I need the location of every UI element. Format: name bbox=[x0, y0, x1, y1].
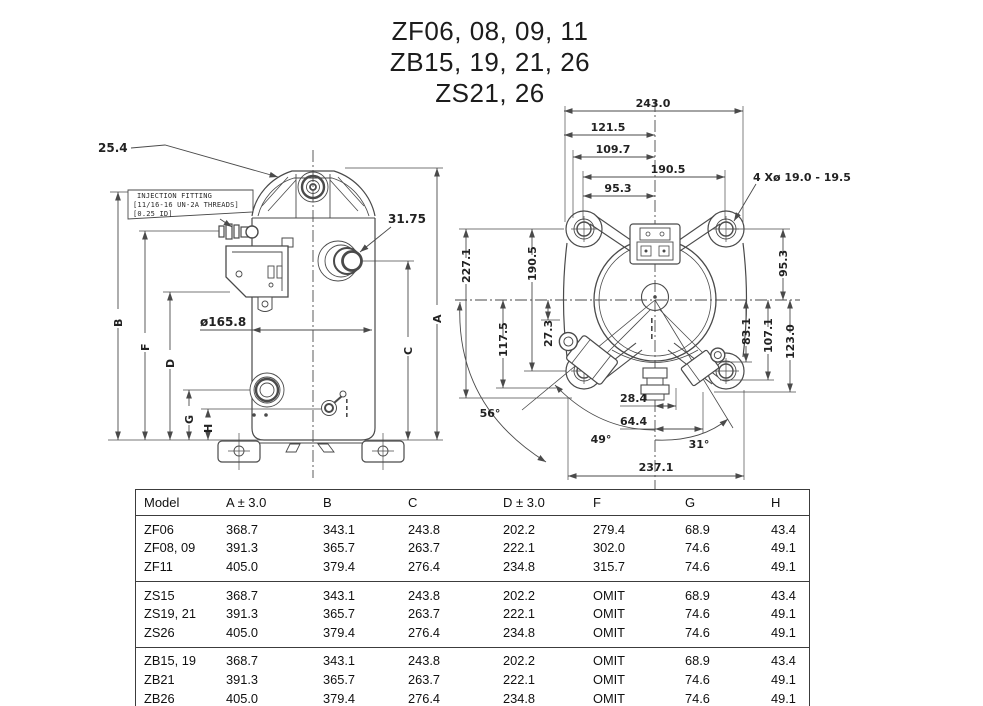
value-cell: 74.6 bbox=[683, 606, 769, 621]
dim-a: A bbox=[431, 168, 444, 440]
value-cell: 49.1 bbox=[769, 559, 805, 574]
table-row: ZS19, 21391.3365.7263.7222.1OMIT74.649.1 bbox=[136, 604, 809, 623]
dim-64-4: 64.4 bbox=[620, 415, 703, 429]
model-cell: ZB21 bbox=[136, 672, 224, 687]
value-cell: 234.8 bbox=[501, 559, 591, 574]
dim-109-7-label: 109.7 bbox=[596, 143, 631, 156]
value-cell: 43.4 bbox=[769, 588, 805, 603]
table-header-cell: G bbox=[683, 495, 769, 510]
value-cell: 405.0 bbox=[224, 559, 321, 574]
angle-56-label: 56° bbox=[480, 407, 501, 420]
dim-190-5-v-label: 190.5 bbox=[526, 246, 539, 281]
value-cell: 368.7 bbox=[224, 522, 321, 537]
table-header-cell: F bbox=[591, 495, 683, 510]
dim-243: 243.0 bbox=[564, 97, 743, 111]
value-cell: OMIT bbox=[591, 691, 683, 706]
value-cell: 368.7 bbox=[224, 653, 321, 668]
dim-g-label: G bbox=[183, 415, 196, 424]
table-row: ZB26405.0379.4276.4234.8OMIT74.649.1 bbox=[136, 689, 809, 706]
dim-d: D bbox=[164, 292, 177, 440]
dim-237-1-label: 237.1 bbox=[639, 461, 674, 474]
dim-107-1-label: 107.1 bbox=[762, 318, 775, 353]
dim-123-0-label: 123.0 bbox=[784, 324, 797, 359]
suction-fitting bbox=[318, 241, 362, 281]
table-group: ZS15368.7343.1243.8202.2OMIT68.943.4ZS19… bbox=[136, 582, 809, 648]
table-header-cell: H bbox=[769, 495, 805, 510]
value-cell: 222.1 bbox=[501, 606, 591, 621]
dim-f: F bbox=[139, 231, 152, 440]
value-cell: 391.3 bbox=[224, 606, 321, 621]
service-valve bbox=[322, 391, 348, 417]
dim-237-1: 237.1 bbox=[568, 461, 744, 476]
dim-b-label: B bbox=[112, 319, 125, 327]
table-row: ZF06368.7343.1243.8202.2279.468.943.4 bbox=[136, 520, 809, 539]
dim-95-3-h: 95.3 bbox=[583, 182, 655, 196]
value-cell: 68.9 bbox=[683, 588, 769, 603]
dim-25-4: 25.4 bbox=[98, 141, 278, 177]
table-row: ZS15368.7343.1243.8202.2OMIT68.943.4 bbox=[136, 586, 809, 605]
injection-fitting bbox=[219, 224, 258, 239]
dim-diameter: ø165.8 bbox=[200, 315, 372, 330]
value-cell: 222.1 bbox=[501, 672, 591, 687]
model-cell: ZS19, 21 bbox=[136, 606, 224, 621]
table-header-cell: A ± 3.0 bbox=[224, 495, 321, 510]
injection-note-line3: [0.25 ID] bbox=[133, 210, 173, 218]
table-row: ZB15, 19368.7343.1243.8202.2OMIT68.943.4 bbox=[136, 652, 809, 671]
table-header-row: ModelA ± 3.0BCD ± 3.0FGH bbox=[136, 490, 809, 516]
value-cell: 49.1 bbox=[769, 672, 805, 687]
dim-d-label: D bbox=[164, 359, 177, 368]
model-cell: ZS15 bbox=[136, 588, 224, 603]
value-cell: 243.8 bbox=[406, 653, 501, 668]
value-cell: 68.9 bbox=[683, 653, 769, 668]
value-cell: 74.6 bbox=[683, 691, 769, 706]
dim-227-1: 227.1 bbox=[460, 229, 473, 398]
value-cell: 405.0 bbox=[224, 691, 321, 706]
value-cell: 405.0 bbox=[224, 625, 321, 640]
dim-109-7: 109.7 bbox=[573, 143, 655, 157]
value-cell: OMIT bbox=[591, 588, 683, 603]
table-row: ZB21391.3365.7263.7222.1OMIT74.649.1 bbox=[136, 670, 809, 689]
holes-note-label: 4 Xø 19.0 - 19.5 bbox=[753, 171, 851, 184]
value-cell: 391.3 bbox=[224, 672, 321, 687]
value-cell: 43.4 bbox=[769, 522, 805, 537]
value-cell: 343.1 bbox=[321, 522, 406, 537]
value-cell: 234.8 bbox=[501, 691, 591, 706]
dim-g: G bbox=[183, 390, 196, 440]
injection-note-line2: [11/16-16 UN-2A THREADS] bbox=[133, 201, 239, 209]
value-cell: 202.2 bbox=[501, 653, 591, 668]
value-cell: 263.7 bbox=[406, 672, 501, 687]
table-row: ZF11405.0379.4276.4234.8315.774.649.1 bbox=[136, 557, 809, 576]
dim-243-label: 243.0 bbox=[636, 97, 671, 110]
model-cell: ZF11 bbox=[136, 559, 224, 574]
model-cell: ZS26 bbox=[136, 625, 224, 640]
dim-107-1: 107.1 bbox=[762, 300, 775, 380]
dim-190-5-h: 190.5 bbox=[583, 163, 725, 177]
value-cell: 263.7 bbox=[406, 606, 501, 621]
terminal-box bbox=[226, 238, 293, 312]
terminal-box-top bbox=[630, 224, 680, 264]
table-header-cell: Model bbox=[136, 495, 224, 510]
injection-note: INJECTION FITTING [11/16-16 UN-2A THREAD… bbox=[128, 190, 253, 227]
technical-drawing: 25.4 INJECTION FITTING [11/16-16 UN-2A T… bbox=[0, 0, 983, 492]
dim-117-5-label: 117.5 bbox=[497, 322, 510, 357]
value-cell: 74.6 bbox=[683, 625, 769, 640]
dim-27-3: 27.3 bbox=[542, 300, 555, 347]
dim-121-5-label: 121.5 bbox=[591, 121, 626, 134]
dim-b: B bbox=[112, 192, 125, 440]
value-cell: 202.2 bbox=[501, 588, 591, 603]
dim-31-75-label: 31.75 bbox=[388, 212, 426, 226]
dim-27-3-label: 27.3 bbox=[542, 320, 555, 347]
value-cell: 365.7 bbox=[321, 540, 406, 555]
value-cell: 365.7 bbox=[321, 606, 406, 621]
dim-121-5: 121.5 bbox=[564, 121, 655, 135]
dim-83-1-label: 83.1 bbox=[740, 318, 753, 345]
value-cell: 276.4 bbox=[406, 559, 501, 574]
value-cell: 365.7 bbox=[321, 672, 406, 687]
model-cell: ZB15, 19 bbox=[136, 653, 224, 668]
dim-h: H bbox=[202, 409, 215, 440]
value-cell: OMIT bbox=[591, 625, 683, 640]
compressor-side-view bbox=[218, 150, 404, 478]
value-cell: OMIT bbox=[591, 672, 683, 687]
model-cell: ZF06 bbox=[136, 522, 224, 537]
value-cell: 379.4 bbox=[321, 691, 406, 706]
dim-117-5: 117.5 bbox=[497, 300, 510, 388]
value-cell: 74.6 bbox=[683, 559, 769, 574]
value-cell: 243.8 bbox=[406, 522, 501, 537]
holes-note: 4 Xø 19.0 - 19.5 bbox=[734, 171, 851, 221]
table-row: ZS26405.0379.4276.4234.8OMIT74.649.1 bbox=[136, 623, 809, 642]
value-cell: 368.7 bbox=[224, 588, 321, 603]
value-cell: 302.0 bbox=[591, 540, 683, 555]
dimension-table: ModelA ± 3.0BCD ± 3.0FGHZF06368.7343.124… bbox=[135, 489, 810, 706]
table-header-cell: D ± 3.0 bbox=[501, 495, 591, 510]
value-cell: 263.7 bbox=[406, 540, 501, 555]
value-cell: OMIT bbox=[591, 653, 683, 668]
model-cell: ZB26 bbox=[136, 691, 224, 706]
dim-95-3-v: 95.3 bbox=[777, 229, 790, 300]
value-cell: 279.4 bbox=[591, 522, 683, 537]
value-cell: 49.1 bbox=[769, 540, 805, 555]
value-cell: 276.4 bbox=[406, 691, 501, 706]
table-header-cell: B bbox=[321, 495, 406, 510]
dim-123-0: 123.0 bbox=[784, 300, 797, 392]
value-cell: OMIT bbox=[591, 606, 683, 621]
dim-diameter-label: ø165.8 bbox=[200, 315, 246, 329]
dim-a-label: A bbox=[431, 314, 444, 323]
sight-glass bbox=[250, 373, 284, 407]
dim-190-5-h-label: 190.5 bbox=[651, 163, 686, 176]
dim-c: C bbox=[402, 261, 415, 440]
drawing-page: ZF06, 08, 09, 11 ZB15, 19, 21, 26 ZS21, … bbox=[0, 0, 983, 706]
value-cell: 202.2 bbox=[501, 522, 591, 537]
dim-28-4-label: 28.4 bbox=[620, 392, 647, 405]
dim-227-1-label: 227.1 bbox=[460, 248, 473, 283]
value-cell: 379.4 bbox=[321, 559, 406, 574]
value-cell: 315.7 bbox=[591, 559, 683, 574]
angle-31-label: 31° bbox=[689, 438, 710, 451]
value-cell: 49.1 bbox=[769, 606, 805, 621]
dim-95-3-v-label: 95.3 bbox=[777, 250, 790, 277]
value-cell: 222.1 bbox=[501, 540, 591, 555]
table-header-cell: C bbox=[406, 495, 501, 510]
injection-note-line1: INJECTION FITTING bbox=[137, 192, 212, 200]
angle-31: 31° bbox=[655, 419, 728, 451]
value-cell: 68.9 bbox=[683, 522, 769, 537]
dim-h-label: H bbox=[202, 424, 215, 433]
value-cell: 276.4 bbox=[406, 625, 501, 640]
table-group: ZF06368.7343.1243.8202.2279.468.943.4ZF0… bbox=[136, 516, 809, 582]
value-cell: 343.1 bbox=[321, 588, 406, 603]
dim-c-label: C bbox=[402, 347, 415, 355]
dim-95-3-h-label: 95.3 bbox=[604, 182, 631, 195]
value-cell: 49.1 bbox=[769, 691, 805, 706]
value-cell: 343.1 bbox=[321, 653, 406, 668]
value-cell: 379.4 bbox=[321, 625, 406, 640]
value-cell: 243.8 bbox=[406, 588, 501, 603]
table-row: ZF08, 09391.3365.7263.7222.1302.074.649.… bbox=[136, 539, 809, 558]
mounting-base bbox=[218, 433, 404, 470]
dim-25-4-label: 25.4 bbox=[98, 141, 128, 155]
model-cell: ZF08, 09 bbox=[136, 540, 224, 555]
value-cell: 43.4 bbox=[769, 653, 805, 668]
value-cell: 49.1 bbox=[769, 625, 805, 640]
value-cell: 391.3 bbox=[224, 540, 321, 555]
value-cell: 74.6 bbox=[683, 540, 769, 555]
dim-f-label: F bbox=[139, 343, 152, 351]
value-cell: 74.6 bbox=[683, 672, 769, 687]
value-cell: 234.8 bbox=[501, 625, 591, 640]
angle-49-label: 49° bbox=[591, 433, 612, 446]
table-group: ZB15, 19368.7343.1243.8202.2OMIT68.943.4… bbox=[136, 648, 809, 706]
